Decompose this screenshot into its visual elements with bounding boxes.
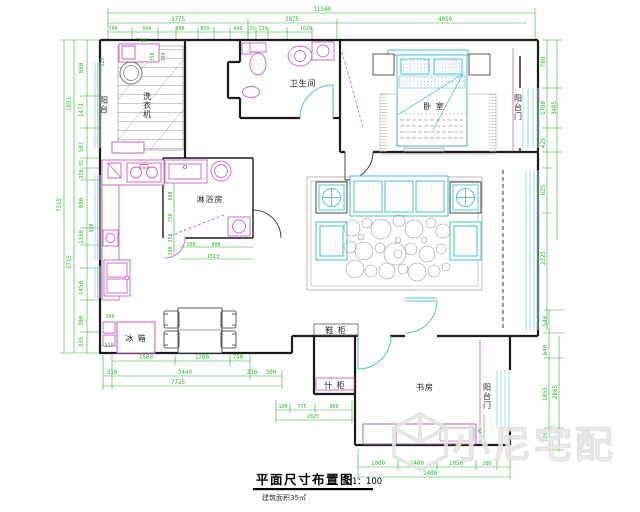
dimension-label: 860 (79, 62, 85, 73)
dimension-label: 530 (89, 223, 95, 232)
title-block: 平面尺寸布置图 1：100 建筑面积35㎡ (253, 472, 382, 502)
mop-pool-icon (243, 87, 260, 98)
dimension-label: 1851 (67, 97, 73, 111)
dimension-label: 230 (247, 370, 258, 376)
room-label-balcony-s: 阳台门 (483, 383, 492, 410)
side-table-icon (450, 182, 481, 213)
nightstand-icon (469, 54, 490, 75)
dimension-label: 1620 (300, 26, 312, 32)
dimension-label: 425 (541, 137, 547, 148)
dimension-label: 3775 (171, 17, 185, 23)
sofa-icon (350, 176, 448, 216)
dimension-label: 540 (543, 315, 549, 326)
dimension-label: 300 (266, 370, 277, 376)
title-underline (253, 488, 373, 490)
dimension-label: 600 (233, 26, 242, 32)
dimension-label: 300 (105, 314, 114, 320)
dimension-label: 2480 (423, 471, 437, 477)
dimension-label: 750 (168, 213, 174, 222)
room-label-balcony-e: 阳台门 (514, 94, 523, 121)
dining-furniture (117, 308, 236, 353)
dimension-label: 850 (200, 26, 209, 32)
dimension-label: 5715 (67, 255, 73, 269)
dimension-label: 700 (108, 26, 117, 32)
dimension-label: 55 (79, 160, 85, 166)
dimension-label: 590 (142, 26, 151, 32)
basin-icon (288, 46, 312, 66)
dimension-label: 3440 (178, 370, 192, 376)
dimension-label: 235 (258, 26, 267, 32)
dimension-label: 2825 (307, 414, 319, 420)
floor-plan-drawing: 阳台 洗衣机 卫生间 卧 室 阳台门 淋浴房 冰 箱 鞋 柜 什 柜 书房 阳台… (0, 0, 640, 512)
toilet-icon (250, 43, 266, 75)
dimension-label: 900 (211, 242, 220, 248)
kitchen-sink-icon (104, 260, 130, 296)
dimension-label: 11340 (313, 7, 331, 13)
round-basin-icon (211, 161, 231, 181)
dimension-label: 310 (107, 370, 118, 376)
balcony-cabinet (112, 142, 144, 153)
dimension-label: 760 (137, 38, 146, 44)
drawing-scale: 1：100 (352, 477, 382, 487)
armchair-icon (316, 222, 347, 260)
dimension-label: 1513 (207, 254, 219, 260)
study-cabinet-icon (363, 424, 396, 444)
pebble-rug-icon (344, 215, 450, 281)
dimension-label: 3485 (552, 101, 558, 115)
nightstand-icon (373, 54, 394, 75)
dimension-label: 700 (541, 56, 547, 67)
dimension-label: 225 (100, 57, 106, 66)
entry-door-arc-icon (405, 298, 437, 333)
room-label-fridge: 冰 箱 (125, 333, 147, 343)
dimension-label: 250 (79, 169, 85, 178)
dimension-label: 1780 (541, 101, 547, 115)
side-table-icon (316, 182, 347, 213)
closet-slide-icon (342, 52, 363, 127)
dimension-label: 640 (543, 344, 549, 355)
room-label-balcony-nw: 阳台 (100, 96, 109, 114)
room-label-bedroom: 卧 室 (423, 101, 445, 111)
dimension-label: 750 (233, 355, 244, 361)
dimension-label: 180 (161, 52, 167, 61)
dimension-label: 1000 (371, 461, 385, 467)
dimension-label: 200 (186, 242, 195, 248)
dimension-label: 1450 (79, 281, 85, 295)
dimension-label: 800 (79, 197, 85, 208)
dimension-label: 775 (297, 404, 306, 410)
dimension-label: 35 (249, 26, 255, 32)
dimension-label: 350 (168, 233, 174, 242)
dimension-label: 2865 (553, 385, 559, 399)
stove-icon (127, 163, 161, 182)
room-label-study: 书房 (416, 382, 434, 392)
counter-box (108, 163, 121, 178)
dimension-label: 4050 (438, 17, 452, 23)
drawing-area-note: 建筑面积35㎡ (262, 493, 306, 502)
dimension-label: 200 (168, 246, 174, 255)
washer2-icon (228, 217, 250, 236)
dimension-label: 310 (104, 343, 113, 349)
room-label-sundry-cabinet: 什 柜 (324, 380, 346, 390)
study-door-arc-icon (358, 336, 391, 369)
hall-door-arc-icon (253, 210, 281, 238)
room-label-washer: 洗衣机 (143, 91, 152, 119)
room-label-shoe-cabinet: 鞋 柜 (325, 325, 347, 335)
dimension-label: 350 (150, 52, 156, 61)
dimension-label: 335 (79, 336, 85, 347)
living-room-furniture (307, 176, 482, 290)
floor-plan-canvas: 阳台 洗衣机 卫生间 卧 室 阳台门 淋浴房 冰 箱 鞋 柜 什 柜 书房 阳台… (0, 0, 640, 512)
dimension-label: 1200 (195, 355, 209, 361)
shower-screen (170, 214, 226, 236)
watermark-text: 小尼宅配 (452, 423, 616, 467)
dimension-label: 600 (168, 191, 174, 200)
dimension-label: 190 (278, 404, 287, 410)
room-label-shower: 淋浴房 (197, 194, 224, 204)
dimension-label: 2325 (541, 251, 547, 265)
bed-icon (388, 50, 468, 146)
bathroom-door-arc-icon (300, 85, 333, 118)
dimension-label: 7315 (57, 198, 63, 212)
dimension-label: 7725 (171, 380, 185, 386)
dimension-label: 860 (329, 404, 338, 410)
dimension-label: 390 (79, 315, 85, 326)
vanity-sink-icon (165, 160, 207, 183)
dimension-label: 1471 (79, 103, 85, 117)
dimension-label: 625 (541, 184, 547, 195)
dining-table-icon (178, 308, 222, 353)
bathroom-fixtures (242, 42, 334, 98)
dimension-label: 1500 (139, 355, 153, 361)
dimension-label: 300 (175, 26, 184, 32)
dimension-label: 507 (79, 141, 85, 152)
dimension-label: 2875 (285, 17, 299, 23)
dimension-label: 1855 (543, 387, 549, 401)
room-label-bathroom: 卫生间 (290, 78, 317, 88)
armchair-icon (450, 222, 481, 260)
foot-mat-icon (404, 148, 444, 154)
cabinet-box (103, 322, 115, 333)
dimension-label: 1130 (79, 230, 85, 244)
bedroom-furniture (373, 48, 513, 154)
corner-sink-icon (312, 42, 334, 60)
drawing-title: 平面尺寸布置图 (256, 472, 354, 487)
